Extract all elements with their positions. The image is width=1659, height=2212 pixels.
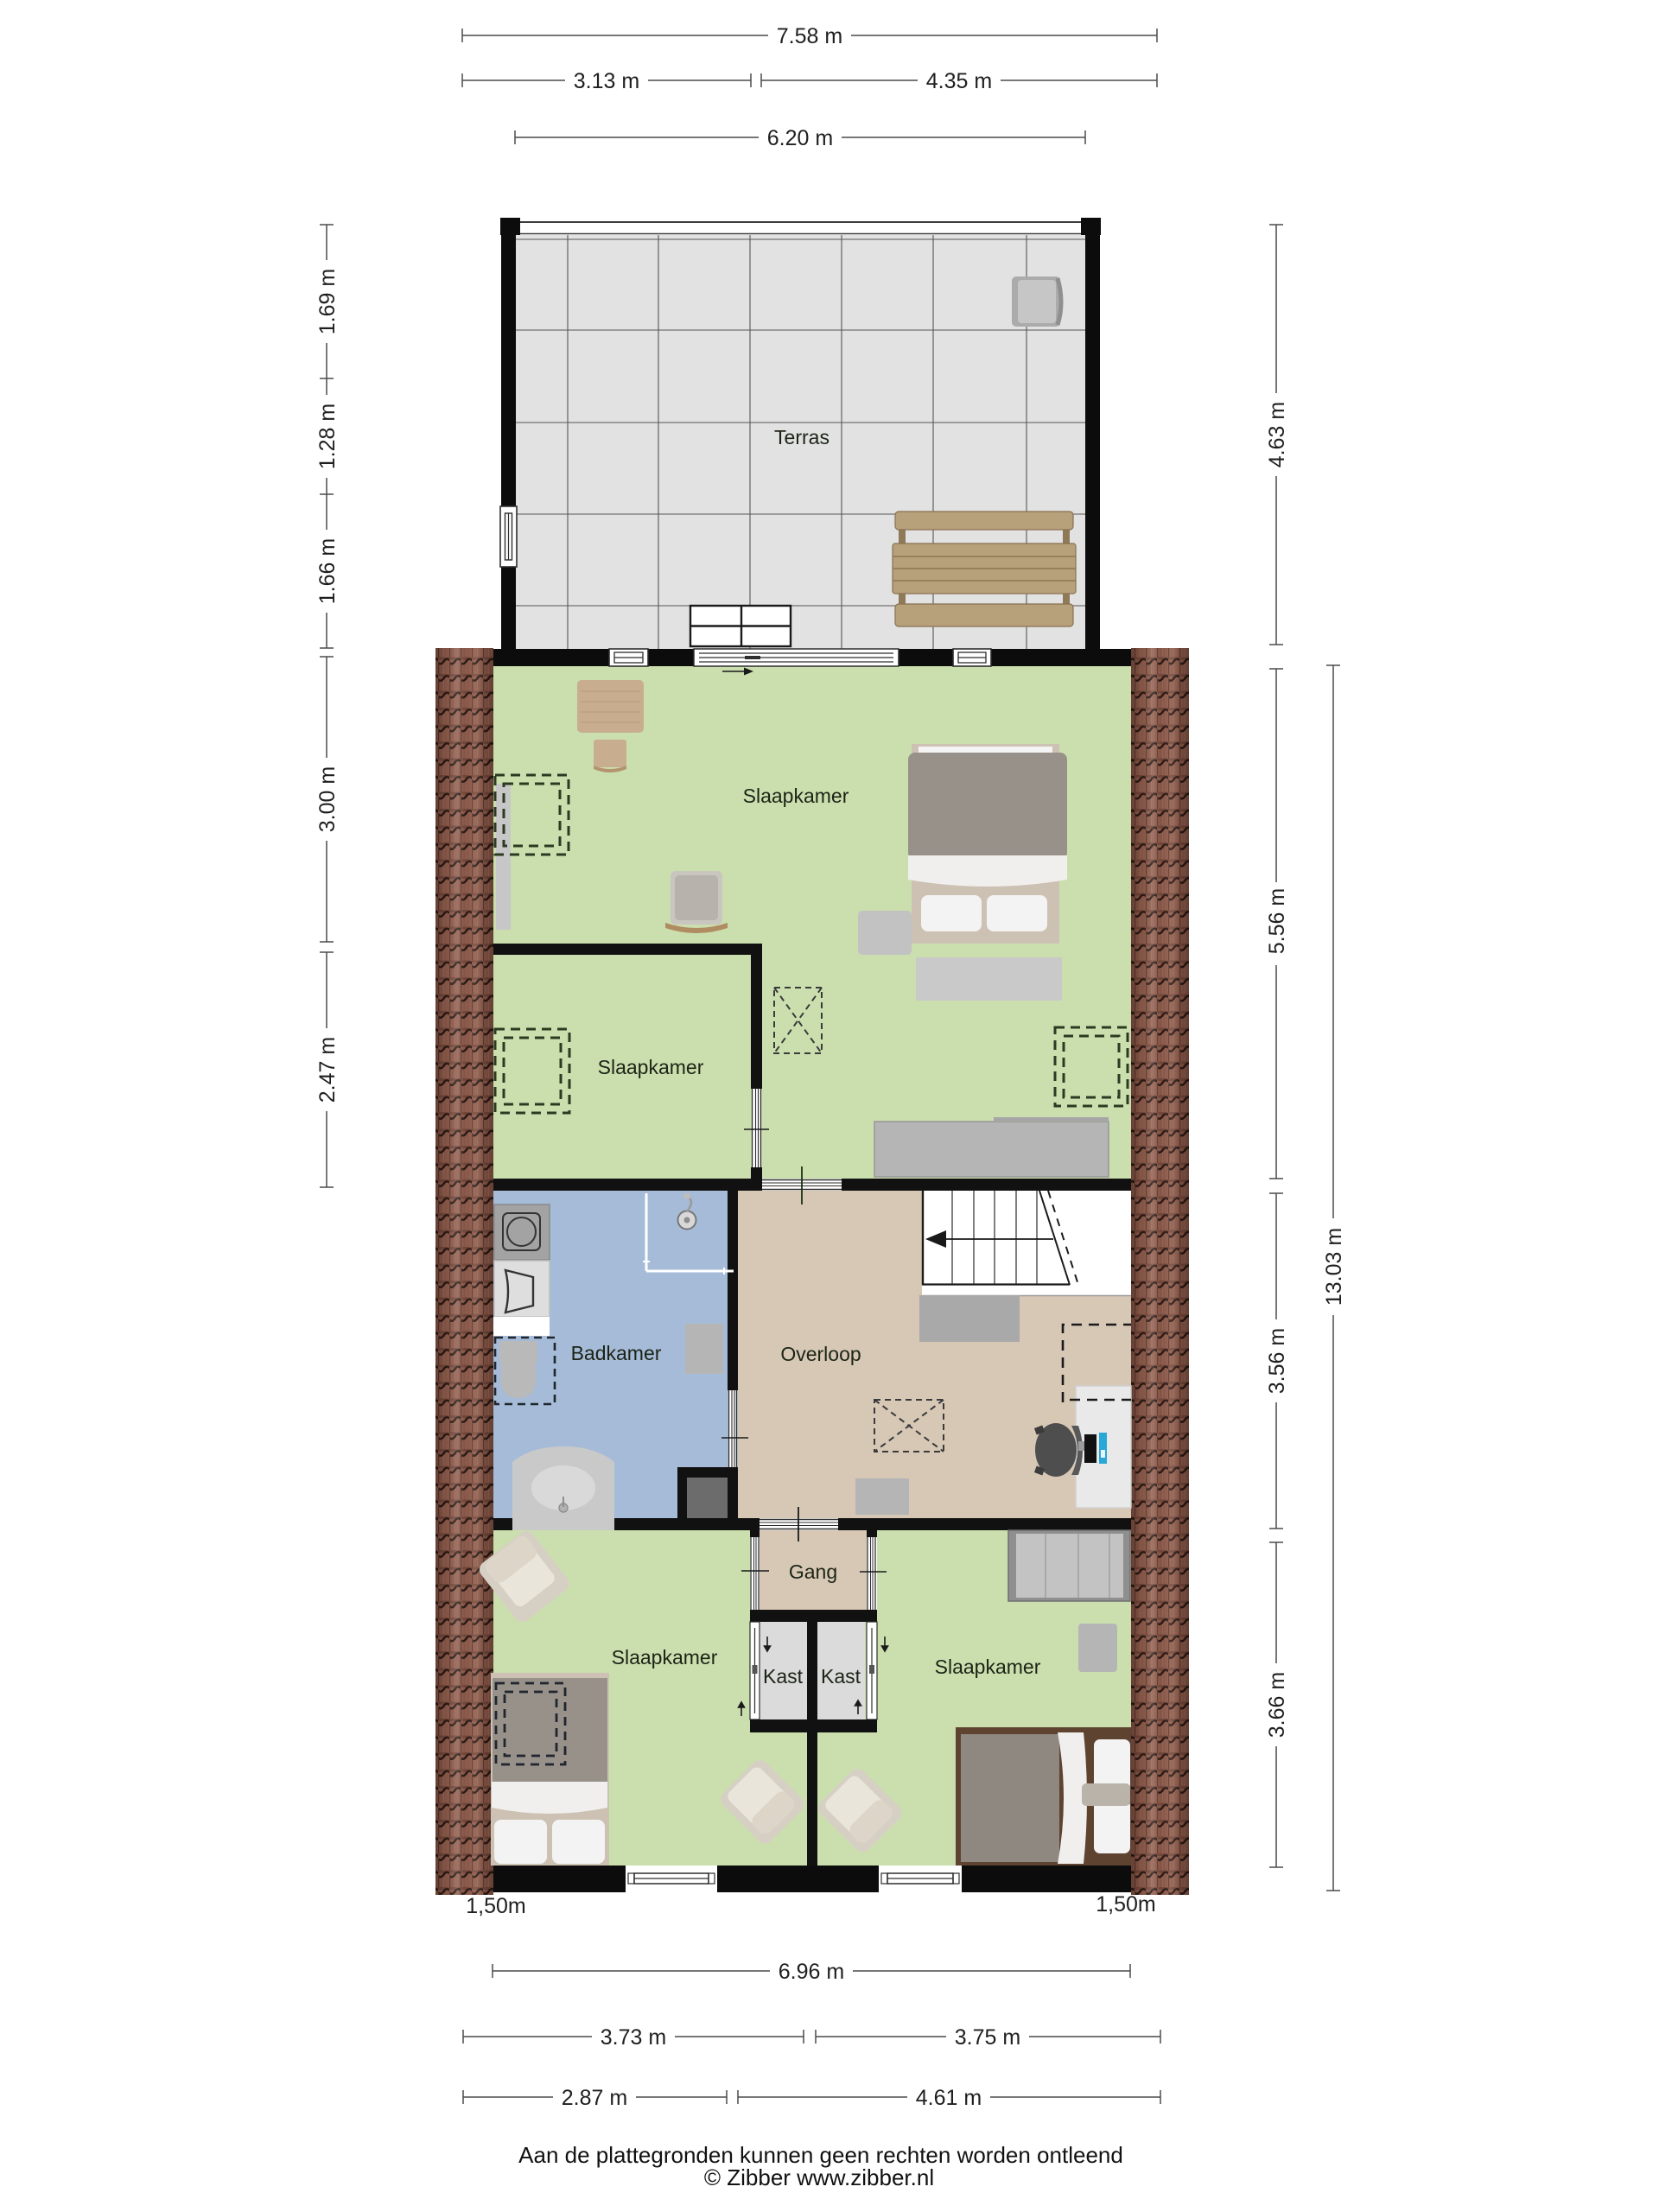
svg-text:13.03 m: 13.03 m [1322,1228,1346,1306]
svg-text:4.35 m: 4.35 m [926,69,992,93]
svg-text:Slaapkamer: Slaapkamer [935,1656,1041,1678]
svg-text:3.00 m: 3.00 m [315,766,340,832]
svg-text:3.73 m: 3.73 m [601,2025,666,2050]
svg-text:6.20 m: 6.20 m [767,126,833,150]
svg-text:3.66 m: 3.66 m [1265,1672,1289,1738]
svg-text:1.66 m: 1.66 m [315,538,340,604]
svg-text:1,50m: 1,50m [1096,1892,1155,1916]
svg-text:1.69 m: 1.69 m [315,269,340,334]
svg-text:3.56 m: 3.56 m [1265,1328,1289,1394]
svg-text:Terras: Terras [774,426,829,448]
svg-text:3.75 m: 3.75 m [955,2025,1020,2050]
svg-text:2.87 m: 2.87 m [562,2086,627,2110]
svg-text:Kast: Kast [821,1665,861,1688]
svg-text:7.58 m: 7.58 m [777,24,842,48]
svg-text:Badkamer: Badkamer [571,1342,662,1364]
svg-text:3.13 m: 3.13 m [574,69,639,93]
svg-text:Slaapkamer: Slaapkamer [743,785,849,807]
svg-text:Gang: Gang [789,1560,837,1583]
svg-text:© Zibber www.zibber.nl: © Zibber www.zibber.nl [704,2164,934,2190]
svg-text:Slaapkamer: Slaapkamer [612,1646,718,1669]
svg-text:6.96 m: 6.96 m [779,1960,844,1984]
svg-text:2.47 m: 2.47 m [315,1037,340,1103]
svg-text:1,50m: 1,50m [466,1894,525,1918]
svg-text:Slaapkamer: Slaapkamer [598,1056,704,1078]
svg-text:Overloop: Overloop [780,1343,861,1365]
svg-text:1.28 m: 1.28 m [315,404,340,469]
svg-text:5.56 m: 5.56 m [1265,888,1289,954]
svg-text:4.61 m: 4.61 m [916,2086,982,2110]
svg-text:4.63 m: 4.63 m [1265,402,1289,467]
svg-text:Kast: Kast [763,1665,804,1688]
